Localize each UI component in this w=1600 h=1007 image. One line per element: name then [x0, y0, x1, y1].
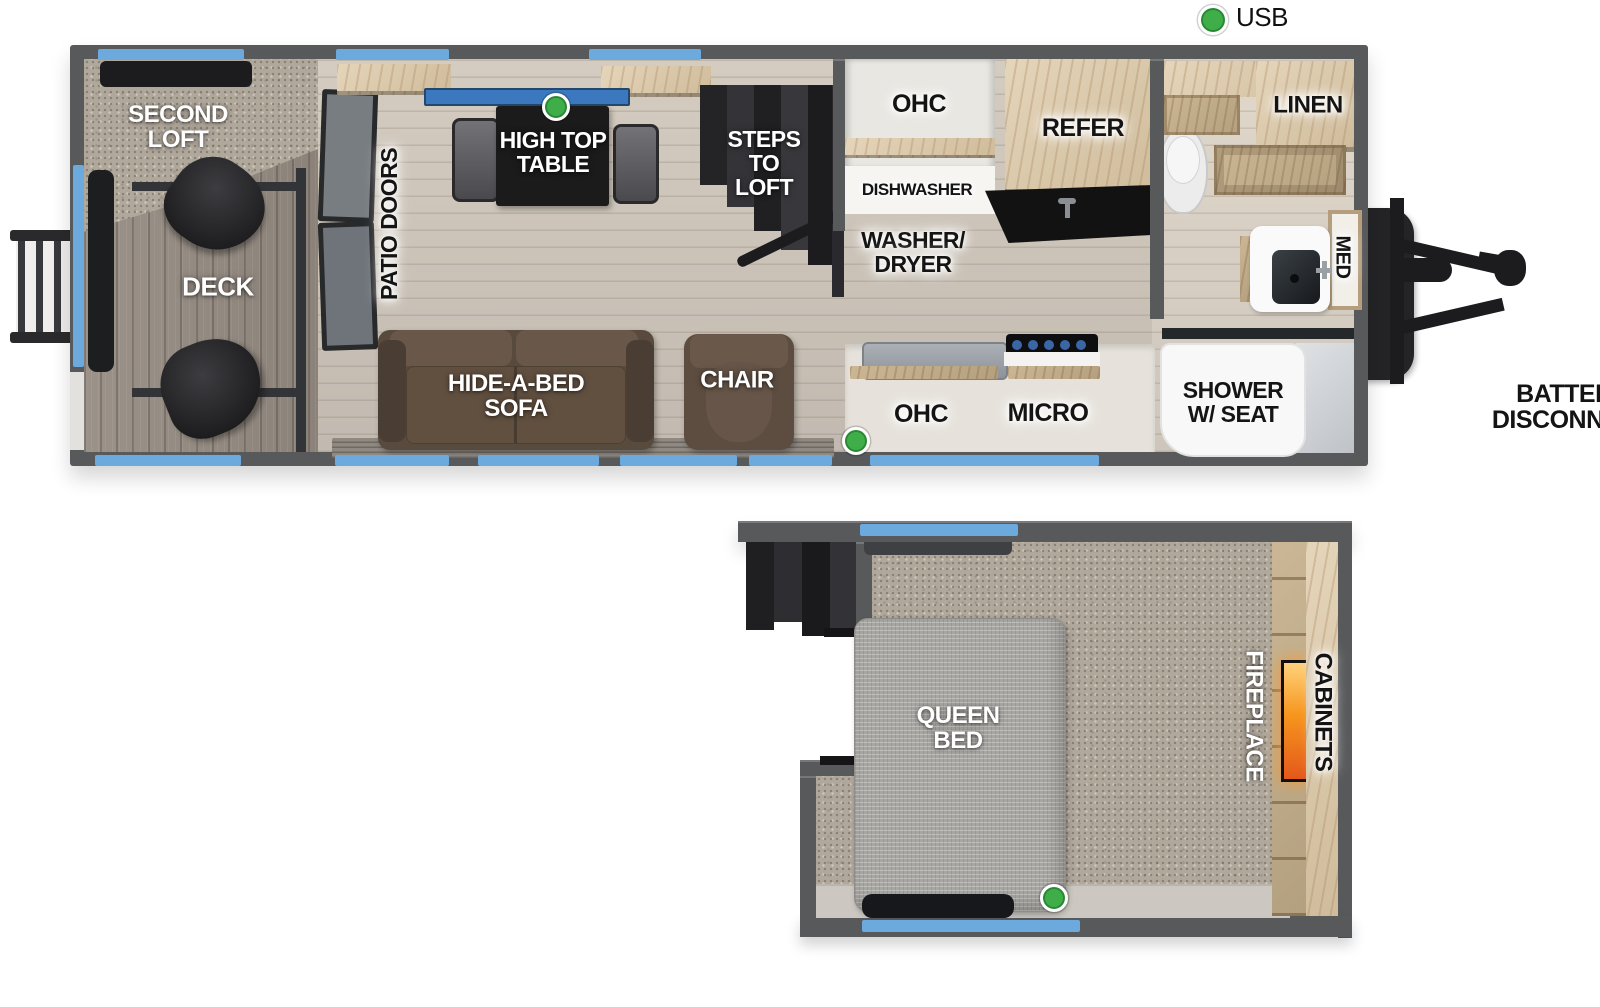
- loft-left-lower-wall: [800, 776, 816, 917]
- usb-indicator-dot: [1040, 884, 1068, 912]
- window: [862, 920, 1080, 932]
- window: [860, 524, 1018, 536]
- queen-bed: [854, 618, 1066, 912]
- stair-step: [746, 542, 774, 630]
- bed-footboard: [862, 894, 1014, 918]
- loft-top-wall: [738, 521, 1352, 542]
- window-valance: [864, 542, 1012, 555]
- stair-step: [802, 542, 830, 636]
- loft-floorplan: QUEEN BED FIREPLACE CABINETS: [0, 0, 1600, 1007]
- floorplan-canvas: USB BATTERY DISCONNECT: [0, 0, 1600, 1007]
- stair-step: [774, 542, 802, 622]
- queen-bed-label: QUEEN BED: [912, 704, 1004, 754]
- cabinets-label: CABINETS: [1310, 653, 1335, 772]
- stair-step: [830, 542, 856, 628]
- fireplace-label: FIREPLACE: [1241, 650, 1266, 782]
- loft-right-wall: [1338, 521, 1352, 938]
